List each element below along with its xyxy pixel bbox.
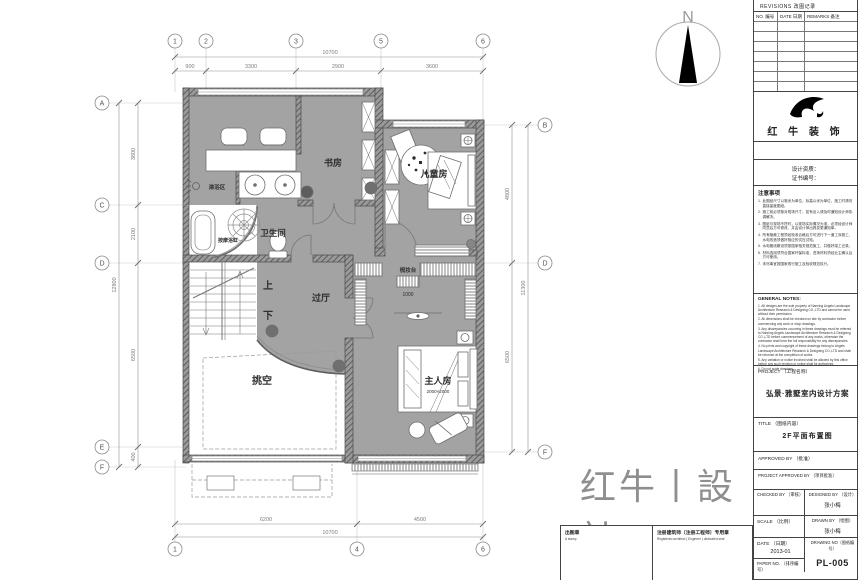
room-label-dresser: 梳妆台 — [399, 266, 417, 274]
dim-left-4: 400 — [131, 452, 137, 461]
date-paper-cell: DATE （日期） 2013-01 PAPER NO. （排序编号） — [754, 538, 805, 572]
grid-label: F — [543, 450, 547, 457]
project-name: 弘景·雅墅室内设计方案 — [758, 388, 857, 399]
stamp-label: 出图章 — [565, 529, 652, 536]
title-block: REVISIONS 改图记录 NO. 编号 DATE 日期 REMARKS 备注… — [753, 0, 858, 580]
dim-left-2: 2100 — [131, 228, 137, 240]
drawn-cell: DRAWN BY （绘图） 张小梅 — [805, 516, 857, 537]
company-name: 红 牛 装 饰 — [754, 123, 857, 138]
room-label-shower: 淋浴区 — [209, 183, 226, 191]
revisions-empty-row — [754, 31, 857, 41]
plant — [467, 240, 476, 249]
scale-cell: SCALE （比例） — [754, 516, 805, 537]
drawing-no-cell: DRAWING NO（图纸编号） PL-005 — [805, 538, 857, 572]
project-label: PROJECT （工程名称） — [758, 368, 857, 375]
grid-label: F — [100, 465, 104, 472]
nightstand — [461, 212, 475, 225]
dim-top-1: 900 — [185, 64, 194, 70]
revisions-empty-row — [754, 41, 857, 51]
grid-label: 1 — [173, 39, 177, 46]
window-top — [198, 89, 363, 95]
designed-label: DESIGNED BY （设计） — [808, 492, 857, 498]
revisions-empty-row — [754, 61, 857, 71]
revisions-col-date: DATE 日期 — [778, 12, 805, 21]
room-label-kids: 儿童房 — [419, 168, 447, 179]
plant — [266, 325, 278, 337]
dim-right-total: 11300 — [521, 281, 527, 296]
stamp-label-en: A stamp — [565, 537, 652, 541]
dim-right-1: 4800 — [505, 188, 511, 200]
plant — [301, 186, 313, 198]
room-label-tub: 按摩浴缸 — [218, 237, 238, 244]
stair-label-up: 上 — [263, 279, 273, 292]
general-note-item: 4. No prints and copyright of these draw… — [758, 344, 854, 356]
dim-top-2: 3300 — [245, 64, 257, 70]
dim-bottom-1: 6200 — [260, 517, 272, 523]
revisions-table: NO. 编号 DATE 日期 REMARKS 备注 — [754, 12, 857, 92]
grid-label: 6 — [481, 39, 485, 46]
compass-north-label: N — [682, 9, 694, 26]
stamp-label-en: Registered architect ( Engineer ) dedica… — [657, 537, 749, 541]
general-notes-cell: GENERAL NOTES: 1. All designs are the so… — [754, 294, 857, 366]
grid-label: D — [99, 261, 104, 268]
checked-cell: CHECKED BY （审核） — [754, 490, 805, 515]
room-label-void: 挑空 — [252, 374, 272, 387]
scale-label: SCALE （比例） — [757, 518, 804, 525]
room-label-master: 主人房 — [424, 375, 451, 386]
dim-left-3: 6500 — [131, 349, 137, 361]
room-label-dresser-sub: 1000 — [402, 292, 413, 298]
grid-label: 4 — [355, 547, 359, 554]
drawn-label: DRAWN BY （绘图） — [808, 518, 857, 524]
note-item: 5.水电管线敷设须按国家相关规范施工，并做好竣工记录。 — [758, 244, 854, 249]
note-item: 6.材料选用须符合国家环保标准，进场材料须经业主确认后方可使用。 — [758, 251, 854, 261]
scale-drawn-row: SCALE （比例） DRAWN BY （绘图） 张小梅 — [754, 516, 857, 538]
study-desk — [206, 150, 296, 171]
stool — [409, 422, 425, 438]
study-chair — [221, 128, 247, 145]
window-master-bottom — [358, 456, 466, 461]
drawing-title-label: TITLE （图纸内容） — [758, 420, 857, 427]
dim-bottom-total: 10700 — [322, 530, 337, 536]
blank-cell — [754, 142, 857, 160]
window-void-bottom — [192, 456, 342, 461]
approved-cell: APPROVED BY （批准） — [754, 452, 857, 470]
revisions-empty-row — [754, 71, 857, 81]
general-note-item: 5. Any variation or notice involved shal… — [758, 358, 854, 366]
nightstand — [461, 134, 475, 147]
balcony — [352, 464, 478, 474]
note-item: 7.未尽事宜按国家现行施工及验收规范执行。 — [758, 262, 854, 267]
notes-cn-cell: 注意事项 1.此图纸尺寸以毫米为单位，标高以米为单位，施工时请勿直接量度图纸。 … — [754, 186, 857, 294]
note-item: 2.施工前必须核对现场尺寸，如有出入请及时通知设计师协调解决。 — [758, 210, 854, 220]
grid-label: E — [100, 445, 105, 452]
drawing-title-cell: TITLE （图纸内容） 2F平面布置图 — [754, 418, 857, 452]
plant — [365, 182, 377, 194]
checked-designed-row: CHECKED BY （审核） DESIGNED BY （设计） 张小梅 — [754, 490, 857, 516]
stamp-strip: 出图章 A stamp 注册建筑师〔注册工程师〕专用章 Registered a… — [560, 525, 753, 580]
dim-top-3: 2900 — [332, 64, 344, 70]
revisions-header: REVISIONS 改图记录 — [754, 0, 857, 12]
project-approved-label: PROJECT APPROVED BY （项目批准） — [758, 473, 857, 479]
dim-top-total: 10700 — [322, 50, 337, 56]
grid-label: 5 — [379, 39, 383, 46]
dim-left-1: 3800 — [131, 148, 137, 160]
credentials-cell: 设计资质： 证书编号： — [754, 160, 857, 186]
project-approved-cell: PROJECT APPROVED BY （项目批准） — [754, 470, 857, 490]
bathtub — [191, 211, 215, 254]
bull-logo-icon — [784, 94, 828, 120]
kids-bed — [428, 152, 476, 209]
designer-name: 张小梅 — [808, 501, 857, 509]
stair-floor — [189, 262, 257, 340]
kids-window-seat — [415, 245, 469, 256]
general-note-item: 1. All designs are the sole property of … — [758, 304, 854, 316]
checked-label: CHECKED BY （审核） — [757, 492, 804, 498]
notes-cn-title: 注意事项 — [758, 189, 854, 197]
credential-line: 设计资质： — [754, 166, 857, 175]
terrace — [192, 464, 332, 497]
revisions-col-no: NO. 编号 — [754, 12, 778, 21]
compass-needle — [679, 25, 697, 83]
room-label-bath: 卫生间 — [260, 228, 286, 238]
stamp-label: 注册建筑师〔注册工程师〕专用章 — [657, 529, 749, 536]
room-label-study: 书房 — [324, 157, 342, 168]
revisions-col-remarks: REMARKS 备注 — [805, 12, 857, 21]
grid-label: 1 — [173, 547, 177, 554]
study-chair — [260, 128, 286, 145]
drawing-sheet: 10700 900 3300 2900 3600 6200 4500 10700… — [0, 0, 860, 580]
drawing-title-value: 2F平面布置图 — [758, 431, 857, 441]
stamp-cell-output: 出图章 A stamp — [561, 526, 653, 580]
nightstand — [457, 331, 473, 344]
plant — [333, 360, 345, 372]
dim-left-total: 12800 — [112, 277, 118, 292]
general-note-item: 3. Any discrepancies occurring in these … — [758, 327, 854, 344]
drafter-name: 张小梅 — [808, 527, 857, 535]
note-item: 4.所有隐蔽工程须经验收合格后方可进行下一道工序施工，水电改造须做好相应的试压试… — [758, 233, 854, 243]
grid-label: 3 — [294, 39, 298, 46]
revisions-empty-row — [754, 21, 857, 31]
project-cell: PROJECT （工程名称） 弘景·雅墅室内设计方案 — [754, 366, 857, 418]
paper-no-label: PAPER NO. （排序编号） — [754, 558, 804, 573]
grid-label: D — [542, 261, 547, 268]
dim-right-2: 6500 — [505, 351, 511, 363]
general-note-item: 2. All dimensions shall be checked on si… — [758, 317, 854, 325]
revisions-empty-row — [754, 51, 857, 61]
dim-bottom-2: 4500 — [414, 517, 426, 523]
credential-line: 证书编号： — [754, 175, 857, 184]
grid-label: C — [99, 203, 104, 210]
note-item: 1.此图纸尺寸以毫米为单位，标高以米为单位，施工时请勿直接量度图纸。 — [758, 199, 854, 209]
window-kids-top — [393, 121, 465, 127]
stair-label-down: 下 — [263, 310, 273, 322]
room-label-master-sub: 2000×2000 — [427, 389, 450, 394]
company-logo-cell: 红 牛 装 饰 — [754, 92, 857, 142]
grid-label: 6 — [481, 547, 485, 554]
date-label: DATE （日期） — [757, 540, 804, 547]
revisions-empty-row — [754, 81, 857, 91]
dresser-cabinet — [397, 276, 419, 287]
floor-medallion — [228, 209, 260, 241]
designed-cell: DESIGNED BY （设计） 张小梅 — [805, 490, 857, 515]
note-item: 3.图纸与现场不符时，以现场实际情况为准，必须经设计师同意后方可修改，并由设计师… — [758, 222, 854, 232]
approved-label: APPROVED BY （批准） — [758, 455, 857, 462]
date-dwgno-row: DATE （日期） 2013-01 PAPER NO. （排序编号） DRAWI… — [754, 538, 857, 572]
stamp-cell-architect: 注册建筑师〔注册工程师〕专用章 Registered architect ( E… — [653, 526, 752, 580]
date-value: 2013-01 — [757, 549, 804, 555]
north-compass: N — [656, 9, 720, 86]
drawing-no-value: PL-005 — [808, 558, 857, 568]
general-notes-title: GENERAL NOTES: — [758, 297, 854, 302]
revisions-column-row: NO. 编号 DATE 日期 REMARKS 备注 — [754, 12, 857, 21]
grid-label: B — [543, 123, 548, 130]
drawing-no-label: DRAWING NO（图纸编号） — [808, 540, 857, 552]
room-label-hall: 过厅 — [312, 292, 330, 303]
grid-label: 2 — [204, 39, 208, 46]
grid-label: A — [100, 101, 105, 108]
dim-top-4: 3600 — [426, 64, 438, 70]
